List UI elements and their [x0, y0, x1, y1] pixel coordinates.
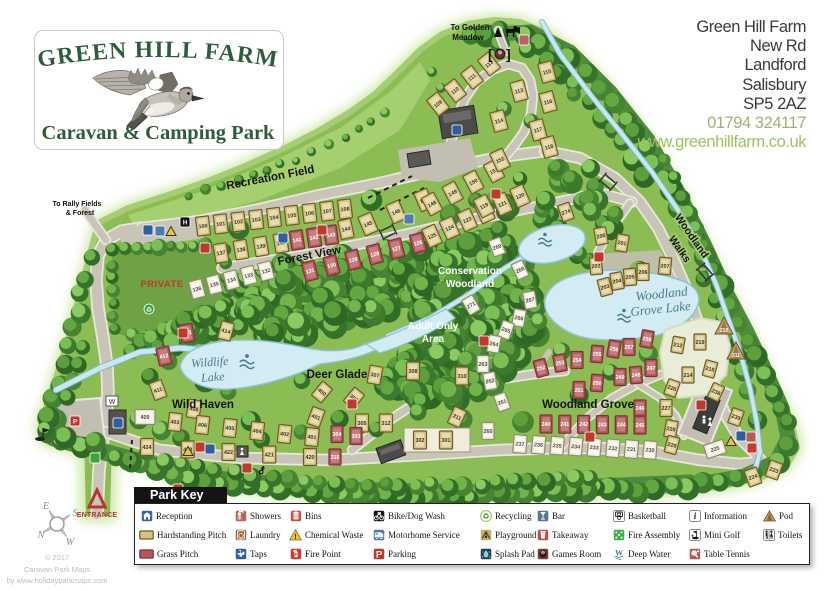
svg-text:P: P: [376, 549, 383, 560]
svg-text:Caravan & Camping Park: Caravan & Camping Park: [42, 122, 276, 144]
svg-text:F: F: [295, 552, 298, 557]
svg-text:!: !: [294, 532, 297, 541]
svg-text:♻: ♻: [482, 512, 489, 521]
svg-text:GREEN HILL FARM: GREEN HILL FARM: [36, 37, 281, 73]
svg-text:8: 8: [542, 551, 544, 555]
